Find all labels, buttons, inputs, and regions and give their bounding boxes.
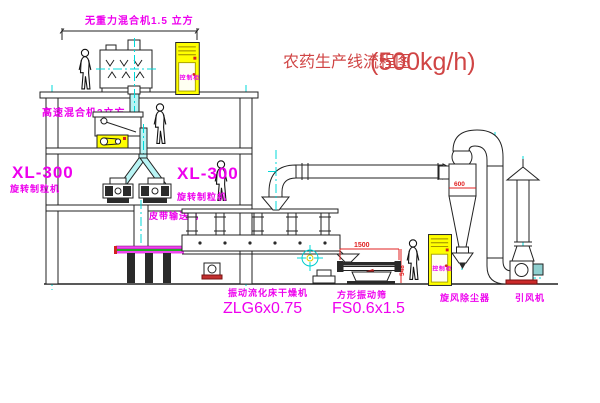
stack-rain-cap [507,167,539,180]
fan-base [506,280,537,284]
title-capacity: (500kg/h) [370,48,476,76]
dryer-hood-plate [182,209,338,213]
dryer-name-label: 振动流化床干燥机 [228,287,308,298]
pipe-vertical-run [487,166,503,258]
cad-flow-diagram: 控制柜 农药生产线流程图 (500kg/h) 无重力混合机1.5 立方 [0,0,600,403]
dryer-model-label: ZLG6x0.75 [223,300,302,317]
cyclone-label: 旋风除尘器 [439,292,490,303]
cyclone-discharge [452,253,473,263]
building-column-right [240,92,252,284]
diagram-canvas: 控制柜 农药生产线流程图 (500kg/h) 无重力混合机1.5 立方 [0,0,600,403]
cyclone-cone [449,196,476,247]
exhaust-duct [262,150,457,212]
sieve-base [352,272,391,281]
person-roof [79,49,91,89]
granulator-mid-model-label: XL-300 [177,164,239,183]
dryer-support-right [313,270,335,283]
belt-conveyor [114,246,184,283]
person-ground [407,240,419,280]
cyclone-diameter-dim: 600 [454,181,465,188]
granulator-right-machine [139,178,171,203]
person-floor2 [154,104,166,144]
dryer-body [182,235,340,251]
control-cabinet-1 [176,42,201,94]
title-block: 农药生产线流程图 (500kg/h) [283,48,476,76]
sieve-name-label: 方形振动筛 [337,289,387,300]
square-vibrating-sieve: 1500 548 [337,242,406,284]
granulator-left-model-label: XL-300 [12,163,74,182]
dryer-vibration-motor [202,263,222,279]
control-cabinet-2 [428,235,452,286]
mixer-drive-unit [97,135,128,148]
duct-elbow-down [269,165,296,197]
sieve-length-dim: 1500 [354,242,370,249]
gravity-mixer-label: 无重力混合机1.5 立方 [84,14,194,27]
granulator-mid-name-label: 旋转制粒机 [176,191,227,202]
dryer-exhaust-ports [186,213,331,235]
fan-motor [533,264,543,275]
sieve-model-label: FS0.6x1.5 [332,300,405,317]
induced-draft-fan [506,261,543,284]
fan-label: 引风机 [515,292,545,303]
granulator-down-duct [134,200,148,252]
top-dimension-line [60,28,199,40]
building-slab-top [40,92,258,98]
cyclone-body [449,164,476,196]
granulator-left-name-label: 旋转制粒机 [9,183,60,194]
stack-pipe [517,180,529,242]
stack-base-cone [512,246,534,261]
fluid-bed-dryer [182,209,352,283]
duct-horizontal-run [295,165,443,178]
building-slab-2 [46,148,252,154]
